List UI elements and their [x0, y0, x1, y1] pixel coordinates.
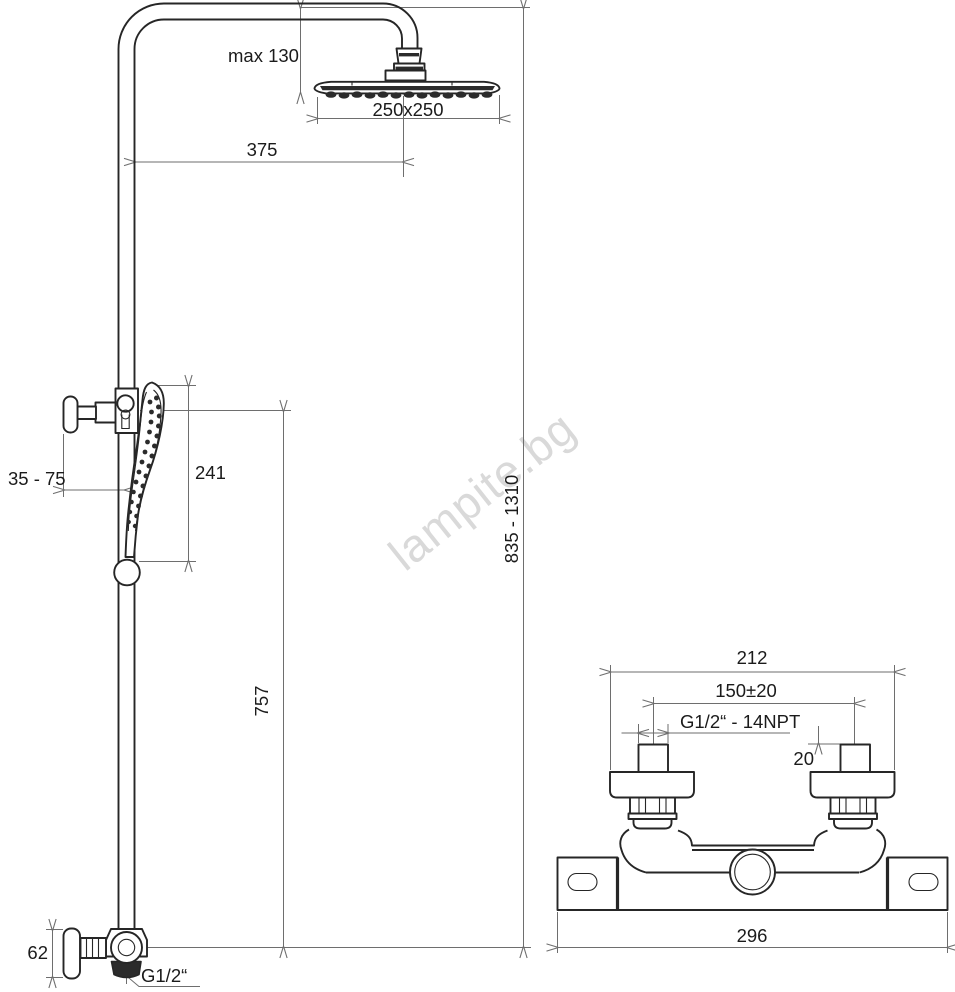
dim-hand-shower-length: 241 — [195, 463, 226, 483]
dim-arm-projection: 375 — [240, 140, 284, 160]
mixer-center-cap — [730, 850, 775, 895]
label-mixer-inlet-thread: G1/2“ - 14NPT — [680, 712, 800, 732]
mixer-mount-plate-right — [888, 858, 948, 911]
dim-column-height-range: 835 - 1310 — [502, 471, 522, 567]
diagram-canvas — [0, 0, 955, 992]
mixer-mount-plate-left — [558, 858, 618, 911]
mixer-inlet-right — [811, 745, 895, 829]
dim-mixer-thread-length: 20 — [787, 749, 814, 769]
mixer-body — [558, 830, 948, 911]
dim-head-size: 250x250 — [364, 100, 452, 120]
technical-drawing-page: lampite.bg — [0, 0, 955, 992]
dim-holder-wall-distance: 35 - 75 — [8, 469, 66, 489]
holder-knob — [117, 395, 133, 411]
head-swivel-joint — [386, 49, 426, 81]
dim-mixer-body-width: 296 — [729, 926, 775, 946]
dim-supply-elbow-height: 62 — [18, 943, 48, 963]
wall-supply-elbow — [64, 929, 148, 979]
dimension-lines — [46, 8, 948, 987]
label-supply-thread: G1/2“ — [141, 966, 187, 986]
dim-mixer-overall-width: 212 — [729, 648, 775, 668]
hand-shower-hose-cone — [114, 560, 140, 586]
hand-shower-holder — [64, 389, 139, 434]
mixer-drawing — [558, 745, 948, 911]
dim-riser-height: 757 — [252, 681, 272, 721]
dim-mixer-inlet-spacing: 150±20 — [705, 681, 787, 701]
dim-max-head-offset: max 130 — [228, 46, 296, 66]
overhead-shower-head — [315, 82, 500, 99]
mixer-inlet-left — [610, 745, 694, 829]
